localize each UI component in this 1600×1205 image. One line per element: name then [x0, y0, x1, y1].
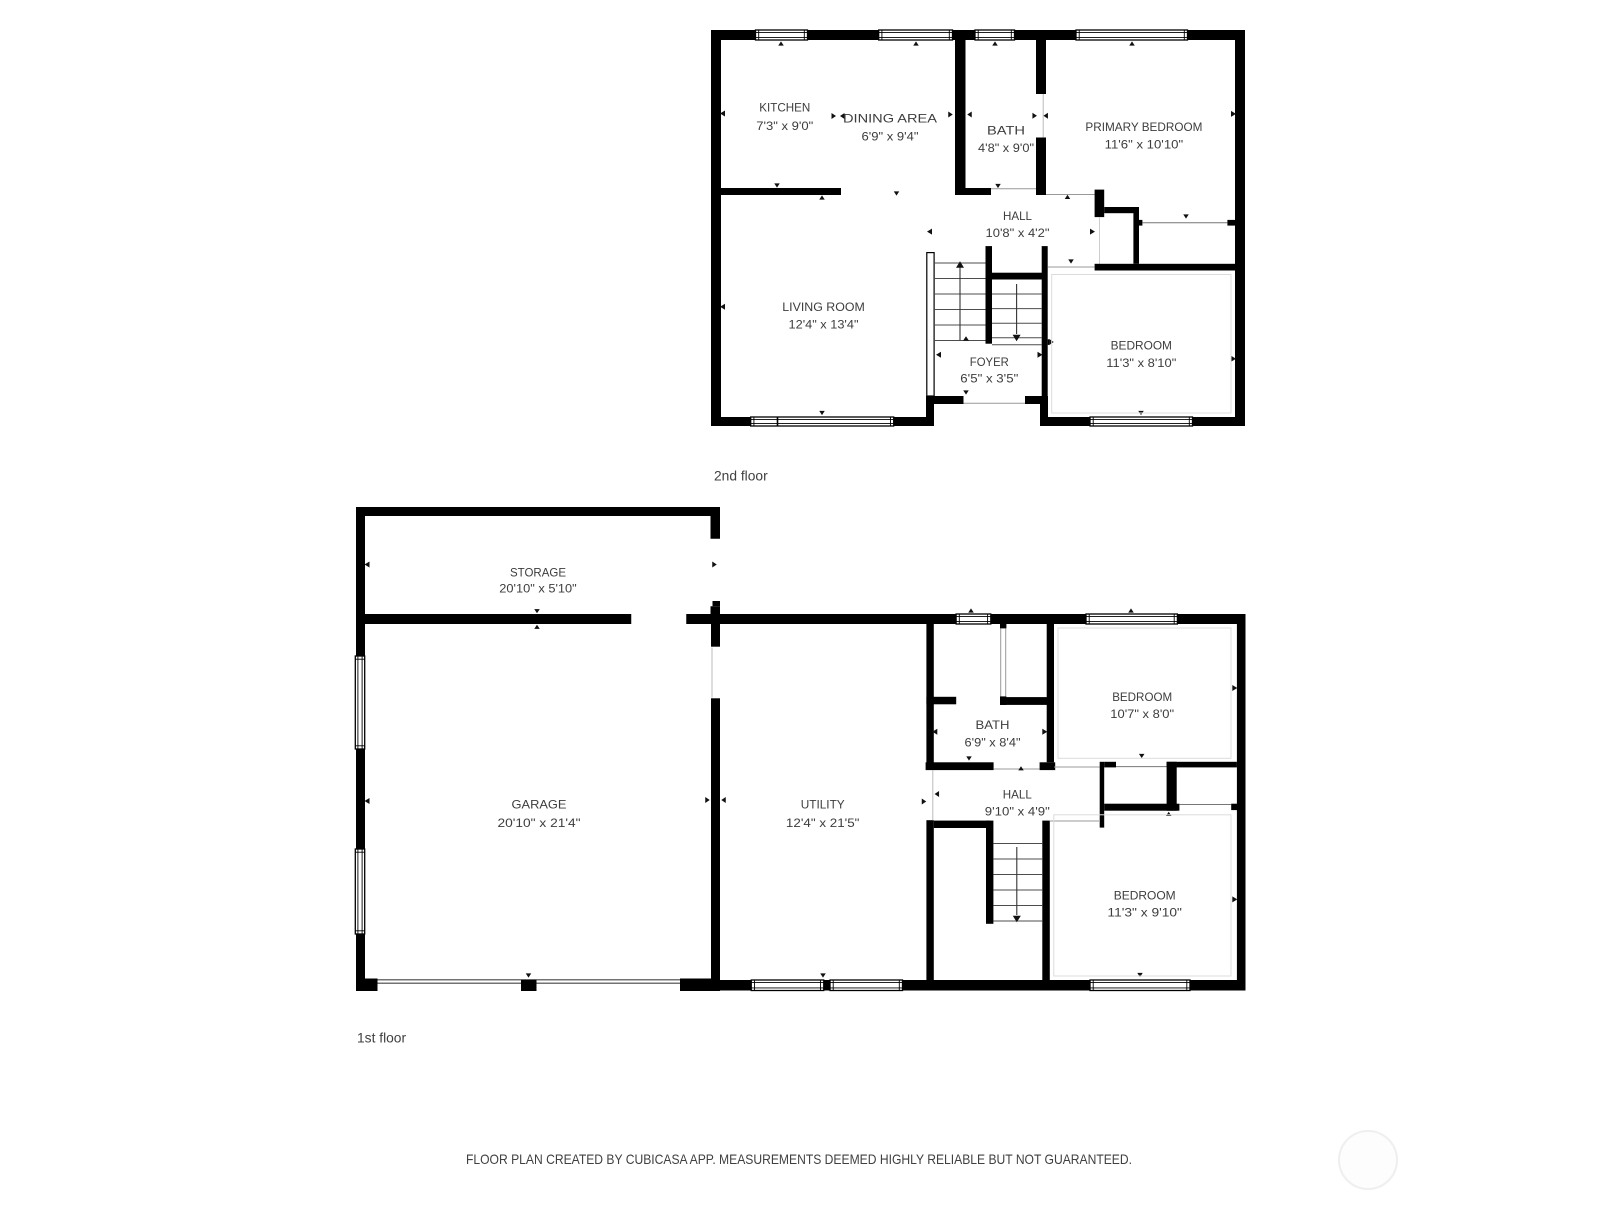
svg-text:20'10" x 5'10": 20'10" x 5'10"	[499, 582, 577, 596]
svg-text:1st floor: 1st floor	[357, 1031, 406, 1046]
svg-text:FLOOR PLAN CREATED BY CUBICASA: FLOOR PLAN CREATED BY CUBICASA APP. MEAS…	[466, 1152, 1132, 1167]
svg-text:BEDROOM: BEDROOM	[1111, 338, 1172, 352]
svg-text:6'9" x 9'4": 6'9" x 9'4"	[862, 130, 919, 144]
svg-text:BEDROOM: BEDROOM	[1114, 888, 1176, 902]
svg-text:KITCHEN: KITCHEN	[759, 101, 810, 115]
svg-text:DINING AREA: DINING AREA	[843, 112, 937, 126]
svg-text:HALL: HALL	[1003, 787, 1032, 801]
svg-text:BEDROOM: BEDROOM	[1112, 690, 1172, 704]
svg-text:9'10" x 4'9": 9'10" x 4'9"	[985, 804, 1050, 818]
svg-text:20'10" x 21'4": 20'10" x 21'4"	[498, 816, 581, 830]
svg-text:7'3" x 9'0": 7'3" x 9'0"	[756, 119, 813, 133]
svg-text:10'7" x 8'0": 10'7" x 8'0"	[1110, 707, 1174, 721]
svg-text:2nd floor: 2nd floor	[714, 469, 768, 484]
svg-text:STORAGE: STORAGE	[510, 565, 566, 579]
svg-text:PRIMARY BEDROOM: PRIMARY BEDROOM	[1085, 120, 1202, 134]
svg-text:4'8" x 9'0": 4'8" x 9'0"	[978, 141, 1034, 155]
svg-text:12'4" x 13'4": 12'4" x 13'4"	[789, 318, 859, 332]
svg-text:12'4" x 21'5": 12'4" x 21'5"	[786, 816, 860, 830]
svg-text:11'3" x 9'10": 11'3" x 9'10"	[1107, 905, 1182, 919]
svg-text:6'5" x 3'5": 6'5" x 3'5"	[960, 371, 1018, 385]
svg-text:UTILITY: UTILITY	[801, 798, 845, 812]
svg-text:FOYER: FOYER	[970, 355, 1009, 369]
svg-text:11'3" x 8'10": 11'3" x 8'10"	[1106, 356, 1176, 370]
svg-text:6'9" x 8'4": 6'9" x 8'4"	[965, 736, 1021, 750]
svg-text:HALL: HALL	[1003, 209, 1032, 223]
svg-text:BATH: BATH	[987, 124, 1025, 138]
svg-text:10'8" x 4'2": 10'8" x 4'2"	[986, 226, 1050, 240]
svg-text:GARAGE: GARAGE	[512, 798, 567, 812]
svg-text:11'6" x 10'10": 11'6" x 10'10"	[1105, 138, 1184, 152]
svg-text:LIVING ROOM: LIVING ROOM	[782, 300, 865, 314]
svg-text:BATH: BATH	[976, 718, 1010, 732]
